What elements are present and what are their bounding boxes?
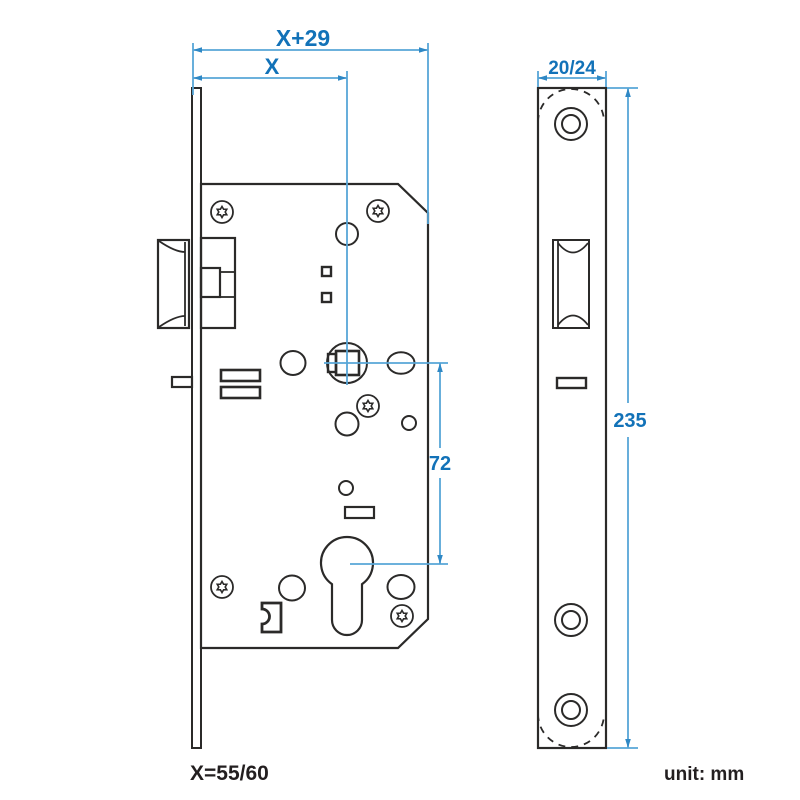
dim-label-center-distance: 72 [429,453,451,475]
deadbolt-slot [557,378,586,388]
faceplate-side-view [538,88,606,748]
mounting-slots [221,370,260,398]
lock-body-front-view [158,88,428,748]
diagram-svg: X+29 X 20/24 235 72 X=55/60 unit: mm [0,0,800,800]
faceplate-outline [538,88,606,748]
backset-note: X=55/60 [190,762,269,785]
lock-dimension-diagram: X+29 X 20/24 235 72 X=55/60 unit: mm [0,0,800,800]
dim-label-faceplate-width: 20/24 [548,58,596,79]
latch-cutout [553,240,589,328]
dim-label-faceplate-length: 235 [613,410,646,432]
dimension-labels: X+29 X 20/24 235 72 X=55/60 unit: mm [190,25,744,785]
square-holes [322,267,331,302]
auto-deadlock-pin [172,377,192,387]
faceplate-strip [192,88,201,748]
latch-bolt [158,240,189,328]
dim-label-backset: X [265,54,280,79]
unit-note: unit: mm [664,764,744,785]
dim-label-total-depth: X+29 [276,25,330,51]
euro-cylinder-hole [321,537,373,635]
radius-end-top-dashed [538,89,604,122]
notched-block [262,603,281,632]
latch-housing [201,238,235,328]
lower-slot [345,507,374,518]
